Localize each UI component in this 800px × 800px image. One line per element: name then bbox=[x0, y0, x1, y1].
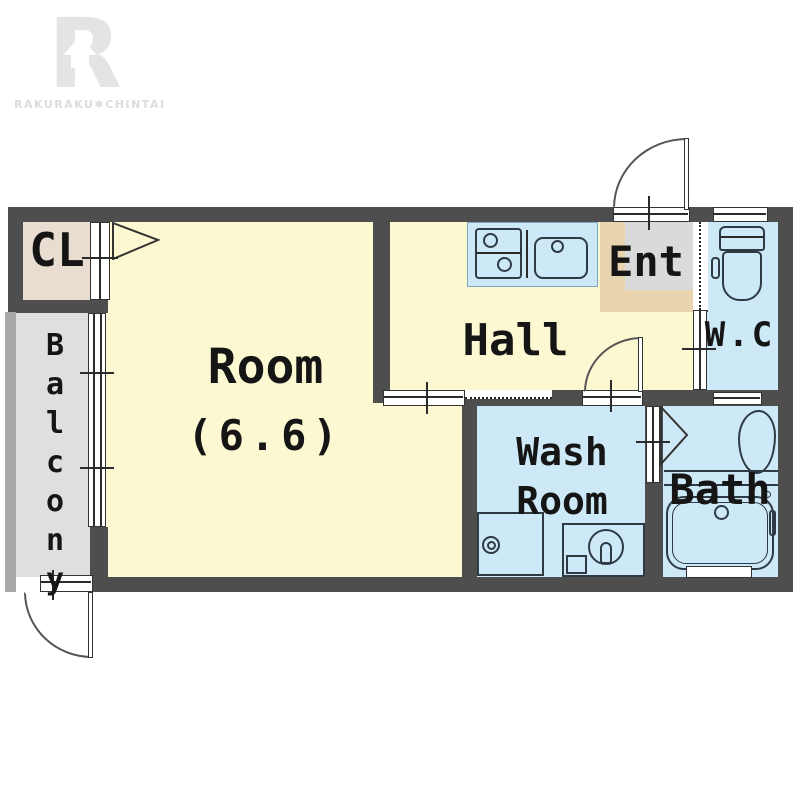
wall-room-left-piece bbox=[90, 527, 108, 577]
closet-door-swing-icon bbox=[112, 222, 160, 260]
sliding-door-track-line bbox=[384, 396, 463, 398]
wall-mid-left-segment bbox=[552, 390, 582, 406]
balcony-door-leaf bbox=[88, 592, 93, 658]
room-size-label: (6.6) bbox=[148, 414, 383, 458]
logo-house-icon bbox=[63, 36, 97, 55]
counter-divider-line bbox=[526, 230, 528, 278]
stove-burner-icon bbox=[497, 257, 512, 272]
window-tick-mark bbox=[80, 372, 114, 374]
balcony-window-line bbox=[93, 314, 95, 526]
wall-left-top bbox=[8, 207, 23, 312]
balcony-door-arc bbox=[24, 592, 92, 658]
room-label: Room bbox=[148, 342, 383, 392]
washroom-label: Wash Room bbox=[478, 428, 646, 526]
washer-drain-inner bbox=[487, 541, 496, 550]
washroom-label-line1: Wash bbox=[478, 428, 646, 477]
room-hall-sliding-door bbox=[383, 390, 465, 406]
washbasin-pedestal bbox=[600, 542, 612, 564]
logo-wordmark: RAKURAKU✱CHINTAI bbox=[14, 98, 166, 111]
entrance-door-leaf bbox=[684, 138, 689, 210]
floorplan-canvas: R RAKURAKU✱CHINTAI bbox=[0, 0, 800, 800]
wc-window-line bbox=[714, 213, 766, 215]
brand-logo: R RAKURAKU✱CHINTAI bbox=[0, 0, 220, 130]
toilet-lever-icon bbox=[711, 257, 720, 279]
entrance-tick-mark bbox=[648, 196, 650, 230]
stove-burner-icon bbox=[483, 233, 498, 248]
balcony-railing bbox=[5, 312, 16, 592]
wall-top-left-segment bbox=[8, 207, 613, 222]
washroom-doorway-line bbox=[583, 396, 641, 398]
wall-under-closet bbox=[8, 300, 108, 313]
faucet-icon bbox=[551, 240, 564, 253]
wall-washroom-top-thin bbox=[465, 399, 552, 406]
washroom-tick-mark bbox=[610, 380, 612, 412]
open-doorway-dotted bbox=[465, 390, 552, 399]
sliding-door-tick-mark bbox=[426, 382, 428, 414]
logo-house-stem bbox=[71, 54, 89, 68]
bath-door-line bbox=[652, 407, 654, 482]
toilet-bowl-icon bbox=[722, 251, 762, 301]
stove-divider-line bbox=[476, 252, 521, 254]
bath-label: Bath bbox=[661, 468, 779, 512]
window-tick-mark bbox=[80, 467, 114, 469]
balcony-window bbox=[88, 313, 106, 527]
balcony-window-line bbox=[100, 314, 102, 526]
toilet-tank-line bbox=[720, 236, 764, 238]
wall-top-mid-segment bbox=[690, 207, 713, 222]
wc-label: W.C bbox=[698, 318, 782, 354]
washroom-door-leaf bbox=[638, 337, 643, 392]
entrance-door-arc bbox=[613, 138, 687, 208]
washroom-label-line2: Room bbox=[478, 477, 646, 526]
wc-dotted-opening bbox=[699, 222, 701, 310]
entrance-threshold-line bbox=[614, 213, 688, 215]
hall-label: Hall bbox=[418, 318, 613, 364]
balcony-label: Balcony bbox=[39, 328, 71, 573]
washroom-doorway bbox=[582, 390, 643, 406]
bath-window-line bbox=[714, 397, 760, 399]
entry-label: Ent bbox=[597, 240, 695, 284]
toilet-tank-icon bbox=[719, 226, 765, 251]
washbasin-cabinet bbox=[566, 555, 587, 574]
closet-label: CL bbox=[26, 226, 88, 274]
closet-door-divider bbox=[99, 223, 101, 299]
wall-washroom-left bbox=[462, 390, 477, 577]
bathtub-step bbox=[686, 566, 752, 578]
wall-bottom bbox=[93, 577, 793, 592]
bath-door-swing-icon bbox=[660, 406, 690, 466]
